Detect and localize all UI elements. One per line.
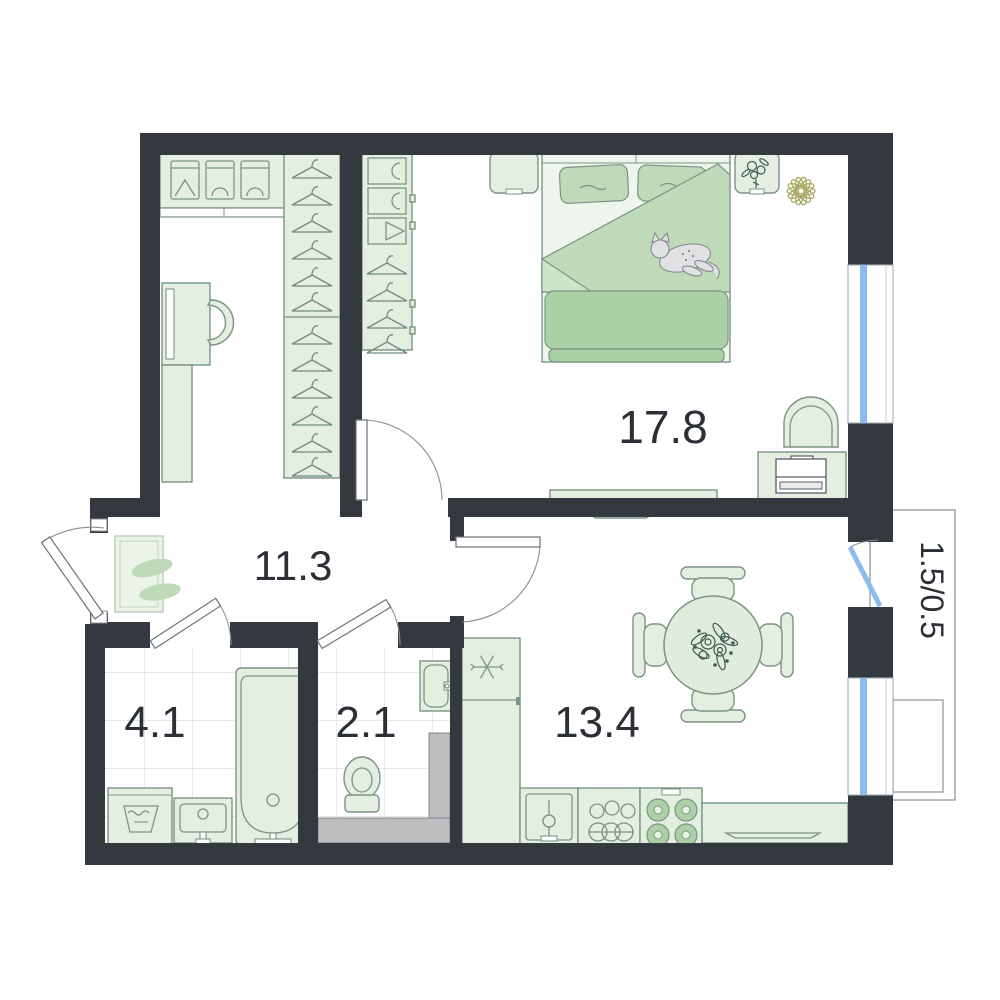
washing-machine: [108, 788, 172, 845]
dish-cabinet: [578, 788, 640, 845]
stove: [640, 788, 702, 846]
room-label-bathroom: 4.1: [124, 698, 185, 747]
bed-footboard: [545, 291, 728, 349]
floor-plan: 17.8 11.3 4.1 2.1 13.4 1.5/0.5: [0, 0, 1000, 1000]
room-label-hallway: 11.3: [254, 542, 333, 589]
bed: [542, 150, 730, 362]
armchair: [784, 397, 838, 447]
bedroom-wardrobe: [362, 152, 415, 353]
bedroom-window: [848, 265, 893, 423]
room-label-toilet: 2.1: [335, 698, 396, 747]
bedroom-desk: [758, 452, 846, 501]
kitchen-sink: [520, 788, 578, 845]
bathroom-sink: [174, 798, 232, 844]
wardrobe-hanger-rail: [284, 152, 340, 478]
toilet: [344, 757, 380, 812]
toilet-sink: [420, 661, 454, 711]
nightstand-right: [735, 152, 779, 194]
room-label-kitchen: 13.4: [554, 698, 640, 747]
room-label-balcony: 1.5/0.5: [914, 541, 950, 639]
kitchen-window: [848, 678, 893, 795]
kitchen-door-leaf: [456, 537, 540, 547]
wardrobe-shelf: [160, 152, 288, 217]
dining-table: [664, 596, 762, 694]
printer: [776, 456, 826, 493]
duct-shaft: [429, 733, 450, 820]
nightstand-left: [490, 152, 538, 194]
room-label-bedroom: 17.8: [618, 401, 708, 453]
balcony-fixture: [893, 700, 943, 792]
refrigerator-column: [462, 638, 520, 845]
bedroom-door-leaf: [356, 420, 367, 500]
door-jamb: [91, 519, 107, 531]
monitor: [166, 289, 174, 359]
duct-shaft: [318, 818, 450, 843]
dressing-cabinet: [162, 365, 192, 482]
kitchen-counter: [702, 803, 848, 843]
